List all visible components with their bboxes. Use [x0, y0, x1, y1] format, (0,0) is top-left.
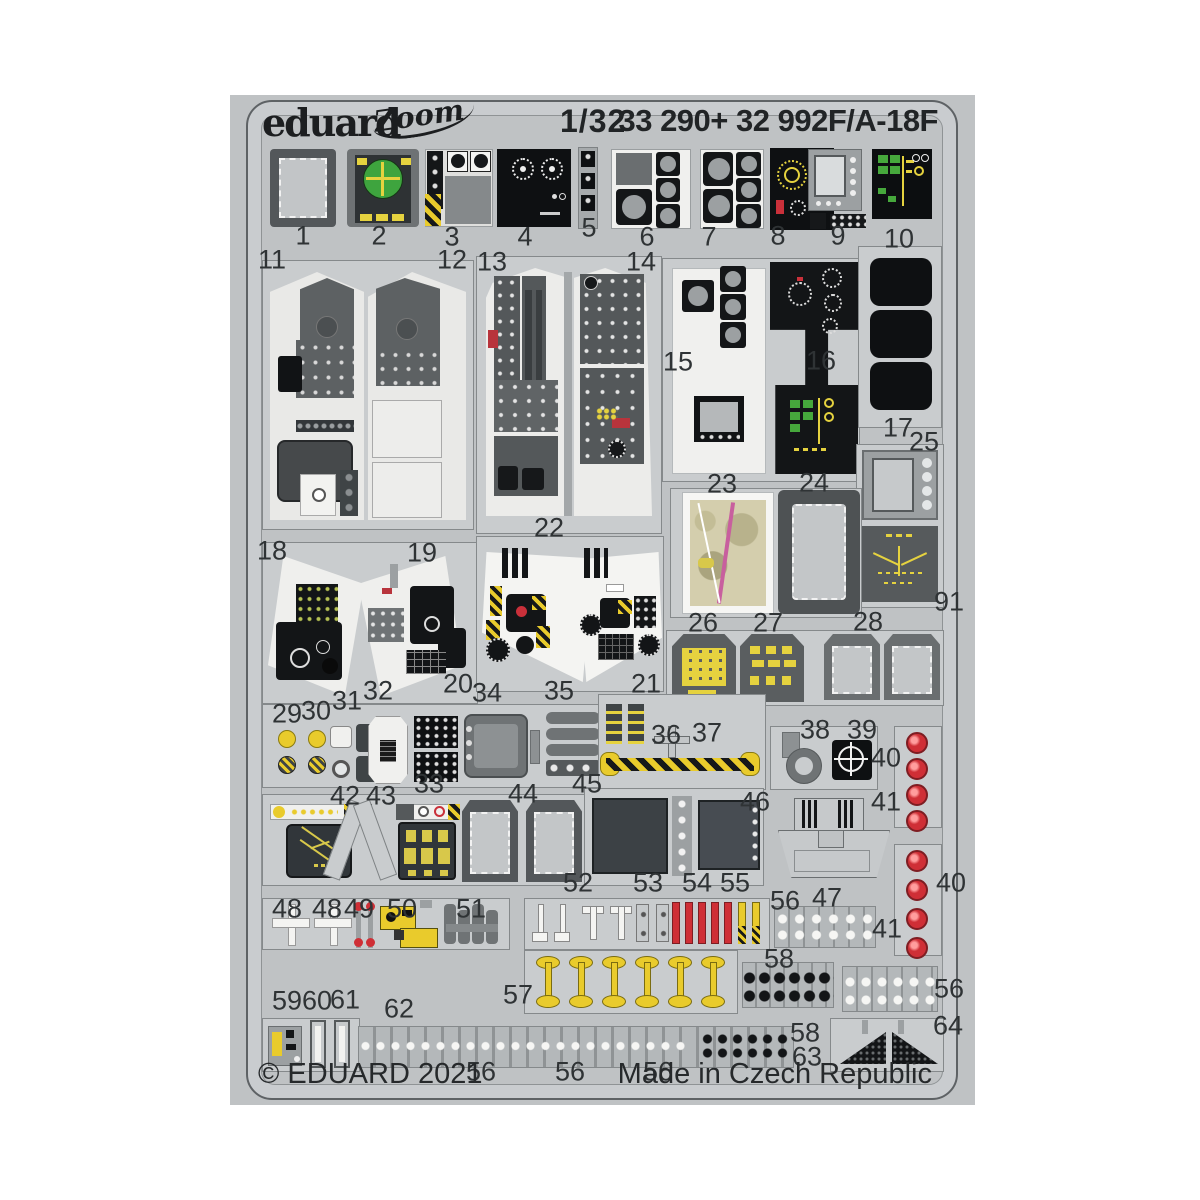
fret-sheet-scan: 1234567891011121314151617252223249126272…: [0, 0, 1200, 1200]
part-44-window: [534, 812, 574, 874]
part-16-yellow-dash: [794, 448, 830, 451]
part-27-key: [766, 676, 775, 685]
part-15-screen: [700, 402, 738, 432]
part-14-center-strip: [564, 272, 572, 516]
part-19-tab: [390, 564, 398, 588]
part-20-starburst: [486, 638, 510, 662]
part-15-screen-dots: [698, 434, 740, 440]
part-12-white-panel: [372, 400, 442, 458]
part-number-2: 2: [371, 221, 386, 252]
part-64-stem: [862, 1020, 868, 1034]
part-number-35: 35: [544, 676, 574, 707]
part-10-yellow-dial: [914, 166, 924, 176]
part-number-23: 23: [707, 469, 737, 500]
part-number-46: 46: [740, 787, 770, 818]
part-number-48: 48: [272, 894, 302, 925]
part-number-54: 54: [682, 868, 712, 899]
made-in-text: Made in Czech Republic: [618, 1058, 932, 1091]
part-27-key: [750, 676, 759, 685]
part-32-grid: [380, 740, 396, 762]
part-91-hud-dashes: [878, 572, 922, 574]
part-15-dial: [725, 327, 741, 343]
part-21-waffle: [598, 634, 634, 660]
part-52-tstem: [590, 906, 597, 940]
part-33-keypad: [414, 716, 458, 748]
part-number-42: 42: [330, 781, 360, 812]
part-60-slot: [315, 1026, 321, 1062]
part-43-key: [408, 870, 416, 876]
part-40-red-knob: [906, 758, 928, 780]
part-14-gauge: [584, 276, 598, 290]
part-10-dial: [912, 154, 920, 162]
part-6-gauge-dial: [660, 182, 676, 198]
part-number-41: 41: [871, 787, 901, 818]
part-number-52: 52: [563, 868, 593, 899]
part-number-53: 53: [633, 868, 663, 899]
part-number-30: 30: [301, 696, 331, 727]
part-16-starburst: [822, 268, 842, 288]
part-3-hazard: [425, 194, 441, 226]
part-number-15: 15: [663, 347, 693, 378]
part-27-key: [752, 660, 764, 667]
part-27-key: [750, 646, 760, 654]
part-21-box: [634, 596, 656, 628]
part-4-mark: [559, 193, 566, 200]
part-19-grid: [406, 650, 446, 674]
part-13-box: [498, 466, 518, 490]
part-20-bars: [502, 548, 528, 578]
part-18-knob: [322, 658, 338, 674]
part-46-knob-col: [672, 796, 692, 876]
part-12-switch-rows: [376, 348, 440, 386]
part-number-49: 49: [344, 894, 374, 925]
part-47-inner-line: [794, 850, 870, 872]
part-number-13: 13: [477, 247, 507, 278]
part-8-starburst: [790, 200, 806, 216]
part-20-red-knob: [516, 606, 527, 617]
part-50-bit: [394, 930, 404, 940]
part-26-keypad: [682, 648, 726, 686]
part-7-dial-big: [708, 158, 730, 180]
part-2-key-row: [360, 214, 372, 221]
part-number-28: 28: [853, 607, 883, 638]
part-34-knob: [466, 754, 472, 760]
part-10-green-key: [890, 166, 900, 174]
part-15-dial: [725, 271, 741, 287]
part-40-red-knob: [906, 732, 928, 754]
scale-label: 1/32: [560, 103, 626, 140]
part-25-knob: [922, 500, 932, 510]
part-number-56: 56: [555, 1057, 585, 1088]
part-7-dial-big: [708, 195, 730, 217]
part-36-strip: [606, 704, 622, 744]
part-16-yellow-dial: [824, 412, 834, 422]
part-21-starburst: [580, 614, 602, 636]
part-number-29: 29: [272, 699, 302, 730]
part-number-21: 21: [631, 669, 661, 700]
part-11-black-box: [278, 356, 302, 392]
part-41-red-knob: [906, 908, 928, 930]
part-number-7: 7: [701, 222, 716, 253]
part-34-inner: [474, 724, 518, 768]
part-57-handle-bot: [569, 995, 593, 1008]
part-10-green-key: [878, 155, 888, 163]
part-59-bit: [286, 1030, 294, 1038]
part-41-red-knob: [906, 937, 928, 959]
part-43-hazard: [448, 804, 460, 820]
part-5-box: [581, 195, 595, 211]
part-43-key: [424, 870, 432, 876]
part-7-dial: [741, 208, 757, 224]
part-42-yellow-knob: [273, 806, 285, 818]
part-56-dots: [774, 930, 876, 940]
part-number-34: 34: [472, 678, 502, 709]
part-4-dot: [549, 166, 555, 172]
part-20-hazard: [490, 586, 502, 616]
part-8-red-detail: [776, 200, 784, 214]
part-51-link: [446, 924, 498, 932]
part-10-yellow-mark: [906, 170, 912, 173]
part-50-gray-bit: [420, 900, 432, 908]
part-43-key: [440, 870, 448, 876]
part-number-37: 37: [692, 718, 722, 749]
fret-sheet: 1234567891011121314151617252223249126272…: [0, 0, 1200, 1200]
part-10-green-key: [888, 196, 896, 202]
part-8-sun-inner: [784, 167, 800, 183]
part-number-11: 11: [258, 245, 286, 276]
part-91-hud-dashes: [884, 582, 916, 584]
part-10-green-key: [890, 155, 900, 163]
part-54-red-bar: [672, 902, 680, 944]
part-number-9: 9: [830, 221, 845, 252]
part-47-grill: [838, 800, 856, 828]
part-6-gauge-dial: [660, 208, 676, 224]
part-43-strip-dark: [396, 804, 414, 820]
part-25-knob: [922, 486, 932, 496]
part-11-knob-strip: [340, 470, 358, 516]
part-11-switch-panel: [296, 340, 354, 398]
part-55-hazard: [752, 926, 760, 944]
part-16-green-key: [790, 400, 800, 408]
part-43-key: [438, 830, 448, 842]
part-number-61: 61: [330, 985, 360, 1016]
part-15-big-dial: [688, 286, 708, 306]
part-10-green-key: [878, 166, 888, 174]
part-21-bars: [584, 548, 608, 578]
part-16-red: [797, 277, 803, 281]
part-12-face-dial: [396, 318, 418, 340]
part-19-switch-box: [368, 608, 404, 642]
part-9-screen: [814, 155, 846, 197]
part-53-strip: [656, 904, 669, 942]
part-57-handle-bot: [536, 995, 560, 1008]
part-43-key: [406, 830, 416, 842]
part-43-key: [422, 830, 432, 842]
part-number-5: 5: [581, 213, 596, 244]
part-20-hazard: [536, 626, 550, 648]
part-11-ratchet: [296, 420, 354, 432]
part-43-key: [404, 848, 416, 864]
part-27-key: [784, 660, 796, 667]
part-number-56: 56: [934, 974, 964, 1005]
part-17-screen: [870, 310, 932, 358]
part-number-18: 18: [257, 536, 287, 567]
part-54-red-bar: [724, 902, 732, 944]
part-43-red-ring: [434, 806, 445, 817]
part-number-60: 60: [302, 986, 332, 1017]
part-29-disc-hatched: [278, 756, 296, 774]
part-27-key: [766, 646, 776, 654]
part-6-big-dial: [622, 195, 646, 219]
part-number-1: 1: [295, 221, 310, 252]
part-number-47: 47: [812, 883, 842, 914]
part-4-dot: [520, 166, 526, 172]
part-number-33: 33: [414, 769, 444, 800]
part-47-notch: [818, 830, 844, 848]
part-57-handle-bot: [635, 995, 659, 1008]
part-30-ring: [332, 760, 350, 778]
part-number-57: 57: [503, 980, 533, 1011]
part-number-16: 16: [806, 346, 836, 377]
part-54-red-bar: [698, 902, 706, 944]
part-16-green-key: [803, 412, 813, 420]
part-18-dial: [290, 648, 310, 668]
part-2-globe-line-v: [381, 162, 384, 196]
part-10-dial: [921, 154, 929, 162]
part-56b-dots: [842, 976, 938, 988]
part-number-26: 26: [688, 608, 718, 639]
part-9-dot: [816, 201, 821, 206]
part-49-red-tip: [366, 938, 375, 947]
part-59-bit: [286, 1044, 296, 1050]
part-4-mark: [552, 194, 557, 199]
part-number-32: 32: [363, 676, 393, 707]
part-number-64: 64: [933, 1011, 963, 1042]
part-43-key: [438, 848, 450, 864]
part-62-dots: [358, 1040, 688, 1052]
part-number-43: 43: [366, 781, 396, 812]
part-29-disc-yellow: [308, 730, 326, 748]
part-10-yellow-line: [902, 156, 904, 206]
part-38-ring-hole: [795, 757, 813, 775]
part-number-45: 45: [572, 769, 602, 800]
part-58-knobs: [742, 990, 834, 1002]
part-44-window: [470, 812, 510, 874]
part-16-starburst: [822, 318, 838, 334]
part-24-window: [792, 504, 846, 600]
part-6-gauge-dial: [660, 156, 676, 172]
part-9-sub-box: [810, 213, 826, 229]
part-number-22: 22: [534, 513, 564, 544]
part-number-62: 62: [384, 994, 414, 1025]
part-30-square: [330, 726, 352, 748]
part-29-disc-yellow: [278, 730, 296, 748]
part-12-white-panel: [372, 462, 442, 518]
part-2-key: [357, 158, 367, 165]
part-11-ring: [312, 488, 326, 502]
part-9-knob: [850, 179, 856, 185]
part-number-31: 31: [332, 686, 362, 717]
part-27-body: [740, 634, 804, 702]
part-15-dial: [725, 299, 741, 315]
part-number-8: 8: [770, 221, 785, 252]
part-number-14: 14: [626, 247, 656, 278]
part-34-knob: [466, 740, 472, 746]
part-55-hazard: [738, 926, 746, 944]
part-1-window: [279, 158, 327, 218]
part-19-dial: [424, 616, 440, 632]
part-9-knob: [850, 190, 856, 196]
part-20-knob: [516, 636, 534, 654]
part-3-gauge-dial: [451, 154, 465, 168]
part-5-box: [581, 151, 595, 167]
part-16-green-key: [790, 424, 800, 432]
part-52-foot: [532, 932, 548, 942]
part-number-38: 38: [800, 715, 830, 746]
part-40-red-knob: [906, 784, 928, 806]
part-27-key: [782, 676, 791, 685]
part-10-green-key: [878, 188, 886, 194]
part-number-27: 27: [753, 608, 783, 639]
part-57-handle-bot: [602, 995, 626, 1008]
part-43-key: [421, 848, 433, 864]
part-9-knob: [850, 157, 856, 163]
part-41-red-knob: [906, 879, 928, 901]
part-36-strip: [628, 704, 644, 744]
part-43-white-knob: [418, 806, 429, 817]
part-25-screen: [872, 458, 914, 512]
part-91-hud-dashes: [886, 534, 914, 537]
part-3-lower-panel: [445, 176, 491, 224]
part-28-window: [892, 646, 932, 694]
part-57-handle-bot: [701, 995, 725, 1008]
copyright-text: © EDUARD 2021: [258, 1058, 482, 1091]
part-21-starburst: [638, 634, 660, 656]
part-52-foot: [554, 932, 570, 942]
part-40-red-knob: [906, 810, 928, 832]
part-34-knob: [466, 726, 472, 732]
part-25-knob: [922, 472, 932, 482]
part-19-red: [382, 588, 392, 594]
part-21-box-hazard: [618, 600, 632, 614]
part-5-box: [581, 173, 595, 189]
part-35-bar: [546, 728, 600, 740]
part-61-slot: [339, 1026, 345, 1062]
part-number-39: 39: [847, 715, 877, 746]
part-28-window: [832, 646, 872, 694]
part-number-20: 20: [443, 669, 473, 700]
part-54-red-bar: [685, 902, 693, 944]
part-number-36: 36: [651, 720, 681, 751]
part-6-subpanel: [616, 153, 652, 185]
part-17-screen: [870, 258, 932, 306]
part-number-10: 10: [884, 224, 914, 255]
part-29-disc-hatched: [308, 756, 326, 774]
part-25-knob: [922, 458, 932, 468]
part-39-cross-h: [834, 758, 868, 760]
part-number-19: 19: [407, 538, 437, 569]
part-number-44: 44: [508, 779, 538, 810]
part-7-dial: [741, 182, 757, 198]
part-20-hazard: [486, 620, 500, 640]
part-number-55: 55: [720, 868, 750, 899]
part-58b-knobs: [700, 1048, 790, 1058]
part-3-gauge-dial: [474, 154, 488, 168]
product-code: 33 290+ 32 992F/A-18F: [618, 103, 938, 139]
part-number-58: 58: [764, 944, 794, 975]
part-number-91: 91: [934, 587, 964, 618]
part-35-bar: [546, 744, 600, 756]
part-13-box: [522, 468, 544, 490]
part-16-starburst: [824, 294, 842, 312]
part-number-50: 50: [387, 894, 417, 925]
part-number-24: 24: [799, 468, 829, 499]
part-56b-dots: [842, 994, 938, 1006]
part-number-48: 48: [312, 894, 342, 925]
part-57-handle-bot: [668, 995, 692, 1008]
part-13-red: [488, 330, 498, 348]
part-number-56: 56: [770, 886, 800, 917]
part-13-mid-cluster: [494, 380, 558, 432]
part-52-tstem: [618, 906, 625, 940]
part-46-screen-left: [592, 798, 668, 874]
part-number-41: 41: [872, 914, 902, 945]
part-9-knob: [850, 168, 856, 174]
part-53-strip: [636, 904, 649, 942]
part-number-25: 25: [909, 427, 939, 458]
part-21-white-tab: [606, 584, 624, 592]
part-45-hazard-bar: [606, 758, 754, 771]
part-number-51: 51: [456, 894, 486, 925]
part-17-screen: [870, 362, 932, 410]
part-14-starburst: [608, 440, 626, 458]
part-47-grill: [802, 800, 820, 828]
part-16-yellow-line: [818, 398, 820, 444]
part-20-box-hazard: [532, 596, 546, 610]
part-64-stem: [898, 1020, 904, 1034]
part-2-key: [401, 158, 411, 165]
part-16-green-key: [803, 400, 813, 408]
part-4-dash: [540, 212, 560, 215]
part-16-yellow-dial: [824, 398, 834, 408]
part-58b-knobs: [700, 1034, 790, 1044]
part-54-red-bar: [711, 902, 719, 944]
part-18-dial: [316, 640, 330, 654]
part-7-dial: [741, 156, 757, 172]
part-27-key: [768, 660, 780, 667]
part-number-4: 4: [517, 222, 532, 253]
part-23-town: [698, 558, 714, 568]
part-11-face-dial: [316, 316, 338, 338]
part-27-key: [782, 646, 792, 654]
part-9-dot: [826, 201, 831, 206]
part-number-12: 12: [437, 245, 467, 276]
part-49-red-tip: [354, 938, 363, 947]
part-41-red-knob: [906, 850, 928, 872]
part-16-green-key: [790, 412, 800, 420]
part-number-59: 59: [272, 986, 302, 1017]
part-16-gear: [788, 282, 812, 306]
part-59-yellow: [272, 1032, 282, 1056]
part-number-40: 40: [871, 743, 901, 774]
part-34-fin: [530, 730, 540, 764]
part-2-key-row: [392, 214, 404, 221]
part-35-bar: [546, 712, 600, 724]
part-9-dot: [836, 201, 841, 206]
part-50-yellow-box: [400, 928, 438, 948]
part-number-40: 40: [936, 868, 966, 899]
part-14-yellow-dots: [596, 408, 618, 420]
